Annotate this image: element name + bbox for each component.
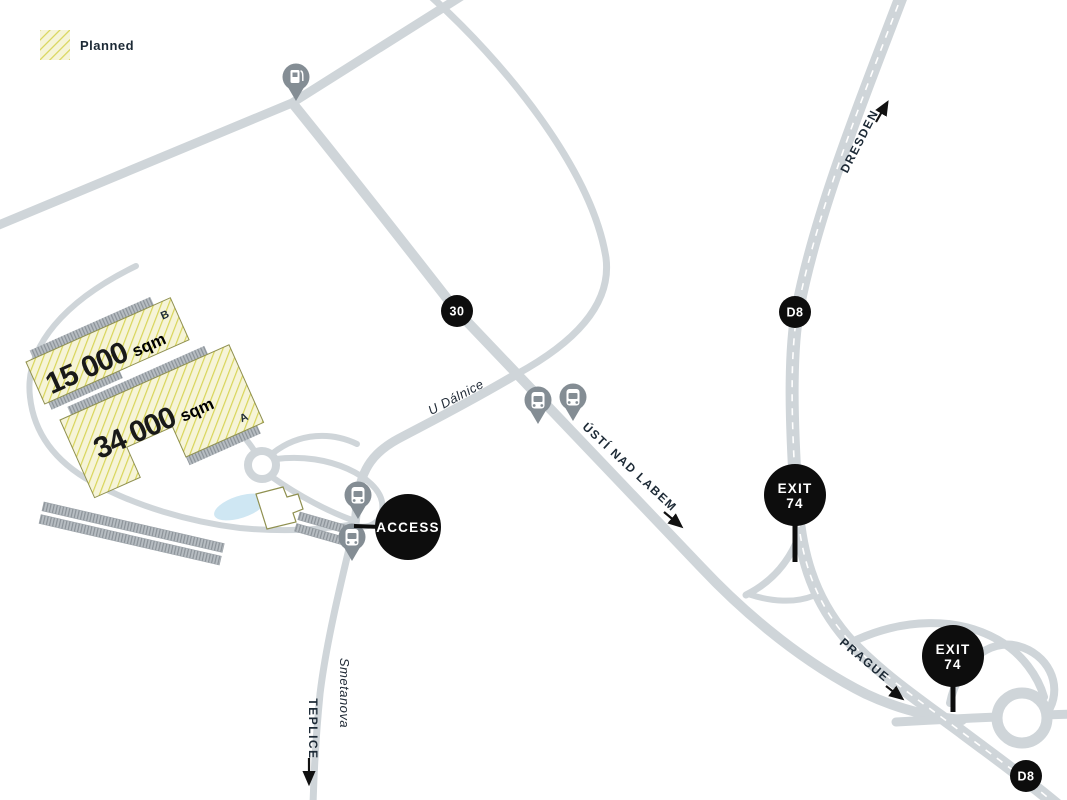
ramp-triangle-a xyxy=(746,536,799,595)
bus-stop-pin-icon xyxy=(345,482,372,520)
site-map: B 15 000sqm A 34 000sqm xyxy=(0,0,1067,800)
label-smetanova: Smetanova xyxy=(337,658,352,728)
legend-planned-swatch-icon xyxy=(40,30,70,60)
map-canvas: B 15 000sqm A 34 000sqm xyxy=(0,0,1067,800)
route-30-badge-label: 30 xyxy=(450,305,465,319)
d8-south-badge-label: D8 xyxy=(1018,770,1035,784)
exit-74-south-line2: 74 xyxy=(944,657,961,672)
d8-north-badge-label: D8 xyxy=(787,306,804,320)
park-road-spoke-ne xyxy=(273,436,357,453)
roundabout-park xyxy=(248,451,276,479)
label-teplice: TEPLICE xyxy=(306,698,320,759)
junction-island xyxy=(256,88,274,107)
bus-stop-pin-icon xyxy=(525,387,552,425)
map-pins xyxy=(283,64,587,562)
ramp-triangle-b xyxy=(748,594,813,601)
road-route-30 xyxy=(294,105,517,374)
access-marker-label: ACCESS xyxy=(376,520,439,535)
bus-stop-pin-icon xyxy=(560,384,587,422)
legend-planned-label: Planned xyxy=(80,38,134,53)
legend: Planned xyxy=(40,30,134,60)
bus-stop-pin-icon xyxy=(339,524,366,562)
roundabout-interchange xyxy=(997,693,1047,743)
exit-74-north-line1: EXIT xyxy=(778,481,813,496)
label-usti-nad-labem: ÚSTÍ NAD LABEM xyxy=(580,419,681,514)
exit-74-south-line1: EXIT xyxy=(936,642,971,657)
exit-74-north-line2: 74 xyxy=(786,496,803,511)
parking-rows xyxy=(39,502,350,565)
road-top-left xyxy=(0,0,468,227)
